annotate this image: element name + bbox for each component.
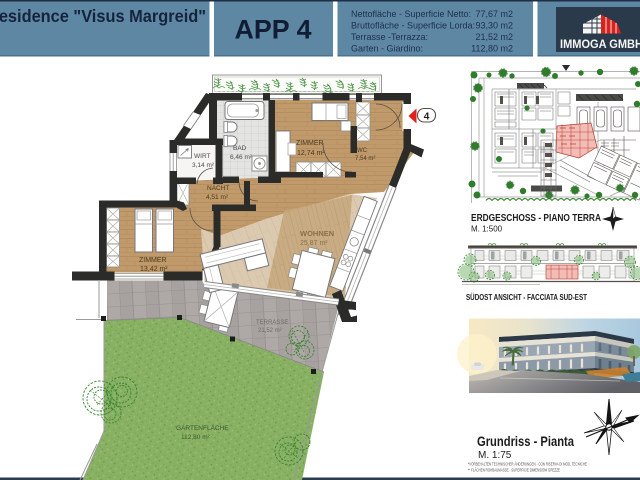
svg-text:TERRASSE: TERRASSE [256,320,288,326]
svg-text:WIRT: WIRT [194,153,211,160]
svg-text:NACHT: NACHT [207,185,229,192]
svg-text:21,52 m2: 21,52 m2 [475,32,513,42]
svg-text:25,87 m²: 25,87 m² [300,240,328,247]
svg-text:WC: WC [357,148,368,154]
svg-text:4: 4 [424,112,430,123]
svg-text:6,46 m²: 6,46 m² [230,154,253,161]
svg-text:WOHNEN: WOHNEN [300,229,334,238]
svg-text:21,52 m²: 21,52 m² [258,328,282,334]
svg-text:Residence "Visus Margreid": Residence "Visus Margreid" [0,6,206,26]
svg-text:Garten - Giardino:: Garten - Giardino: [351,44,423,54]
svg-text:ERDGESCHOSS - PIANO TERRA: ERDGESCHOSS - PIANO TERRA [471,213,601,224]
svg-text:BAD: BAD [233,145,247,152]
svg-text:GARTENFLÄCHE: GARTENFLÄCHE [176,424,229,432]
svg-text:Nettofläche - Superficie Netto: Nettofläche - Superficie Netto: [351,9,471,19]
svg-text:ZIMMER: ZIMMER [139,257,167,264]
svg-text:7,54 m²: 7,54 m² [355,156,375,162]
svg-text:ZIMMER: ZIMMER [296,140,324,147]
svg-text:M. 1:75: M. 1:75 [478,450,512,461]
svg-text:Grundriss - Pianta: Grundriss - Pianta [477,433,574,449]
svg-text:112,80 m²: 112,80 m² [181,434,211,441]
svg-text:112,80 m2: 112,80 m2 [471,44,513,54]
svg-text:Terrasse -Terrazza:: Terrasse -Terrazza: [351,32,428,42]
svg-text:*VORBEHALTEN TECHNISCHER ÄNDER: *VORBEHALTEN TECHNISCHER ÄNDERUNGEN - CO… [468,462,587,467]
svg-text:M. 1:500: M. 1:500 [471,225,503,234]
svg-text:12,74 m²: 12,74 m² [297,150,325,157]
svg-text:SÜDOST ANSICHT - FACCIATA SUD-: SÜDOST ANSICHT - FACCIATA SUD-EST [466,292,587,302]
svg-text:APP 4: APP 4 [235,15,312,45]
svg-text:77,67 m2: 77,67 m2 [475,9,513,19]
svg-text:93,30 m2: 93,30 m2 [475,21,513,31]
svg-text:4,51 m²: 4,51 m² [206,194,229,201]
svg-text:IMMOGA GMBH: IMMOGA GMBH [560,39,640,51]
svg-text:** FLÄCHEN ROHBAUMASSE - SUPER: ** FLÄCHEN ROHBAUMASSE - SUPERFICIE DIME… [468,468,560,473]
svg-text:Bruttofläche - Superficie Lord: Bruttofläche - Superficie Lorda: [351,21,475,31]
